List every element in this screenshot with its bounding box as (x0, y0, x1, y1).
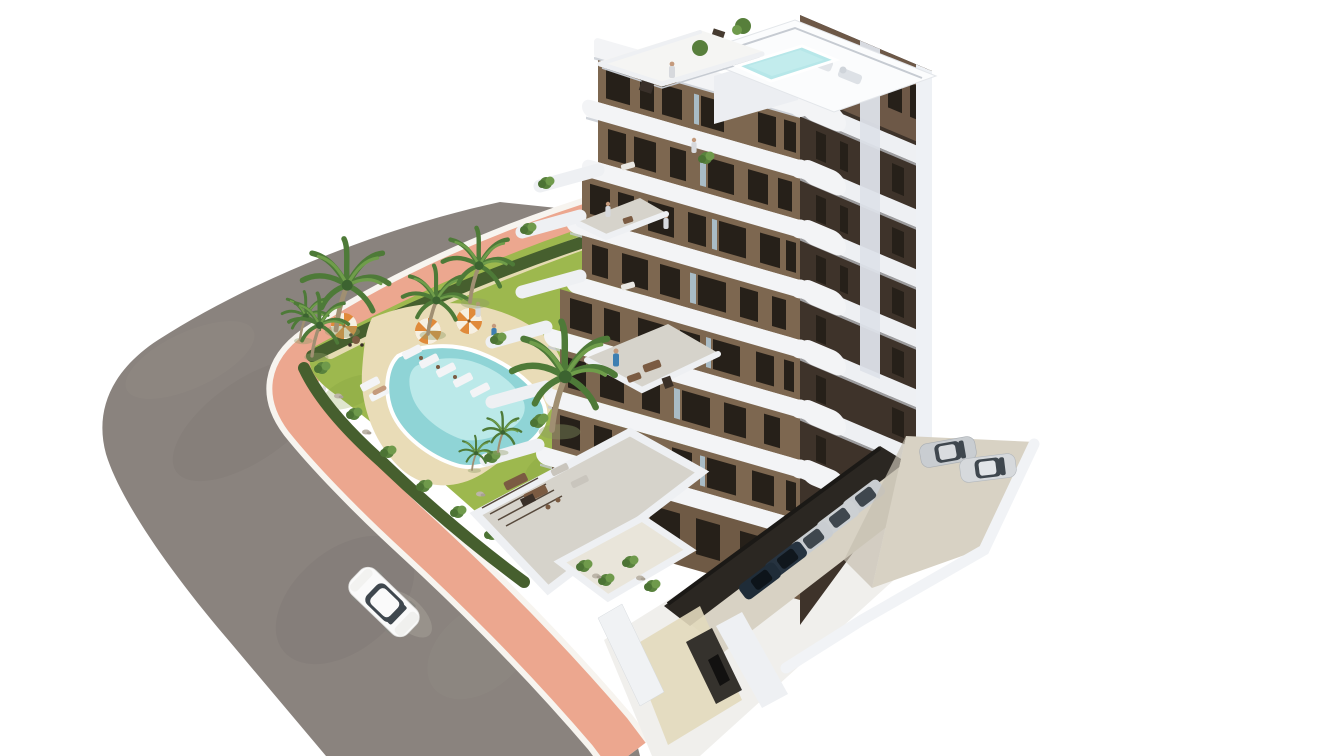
architectural-render (0, 0, 1319, 756)
window (840, 141, 848, 172)
window (816, 375, 826, 405)
roof-plant (732, 25, 742, 35)
window (592, 244, 608, 279)
window (634, 136, 656, 172)
window (772, 296, 786, 330)
chair (360, 343, 364, 347)
corner-round (791, 160, 810, 179)
window-glass (690, 272, 696, 304)
window (816, 315, 826, 345)
window (892, 287, 904, 318)
side-table (419, 356, 423, 360)
window (778, 178, 792, 212)
corner-round (791, 400, 810, 419)
roof-table (840, 67, 847, 74)
window (816, 131, 826, 163)
corner-round (791, 280, 810, 299)
roof-plant (692, 40, 708, 56)
corner-column (916, 64, 932, 449)
window (784, 119, 796, 152)
person-on-balcony (691, 138, 696, 153)
person-on-terrace (605, 202, 610, 217)
window (740, 287, 758, 322)
window (670, 147, 686, 182)
window (760, 233, 780, 269)
window (816, 435, 826, 465)
window (724, 402, 746, 438)
window (892, 227, 904, 258)
chair (348, 343, 352, 347)
window (892, 347, 904, 378)
chair (556, 498, 561, 503)
window-glass (674, 388, 680, 420)
window (786, 240, 796, 273)
person-on-roof (669, 62, 675, 78)
window (816, 195, 826, 225)
window (784, 359, 794, 392)
window (892, 163, 904, 196)
window (756, 351, 774, 386)
window (816, 255, 826, 285)
corner-round (791, 340, 810, 359)
side-table (453, 375, 457, 379)
window (570, 298, 592, 334)
corner-round (791, 460, 810, 479)
window-glass (694, 94, 699, 125)
window (748, 169, 768, 205)
window (660, 264, 680, 300)
window (892, 407, 904, 438)
table (352, 336, 360, 344)
window (688, 212, 706, 247)
window (840, 265, 848, 294)
window (696, 518, 720, 561)
window (608, 129, 626, 164)
window (758, 112, 776, 147)
chair (546, 505, 551, 510)
window (786, 480, 796, 513)
side-table (436, 365, 440, 369)
person-in-blue (613, 349, 619, 367)
corner-round (791, 220, 810, 239)
window (662, 84, 682, 120)
window-glass (712, 219, 717, 250)
window (752, 470, 774, 506)
render-canvas (0, 0, 1319, 756)
window (764, 414, 780, 449)
window (840, 205, 848, 234)
